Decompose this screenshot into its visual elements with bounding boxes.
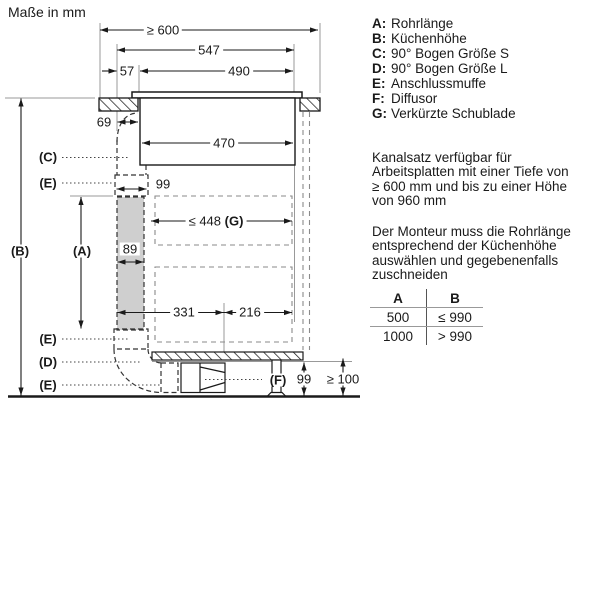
label-E-mid: (E) [36,333,59,346]
dim-drawer-width: ≤ 448 (G) [186,215,247,228]
legend-item-G: G:Verkürzte Schublade [372,106,516,121]
leader-lines [62,158,262,386]
label-B: (B) [8,245,32,258]
legend-item-F: F:Diffusor [372,91,516,106]
legend-label-A: Rohrlänge [391,16,453,31]
page: Maße in mm ≥ 600 547 57 490 69 470 99 ≤ … [0,0,600,600]
legend-key-F: F: [372,91,391,106]
dim-plinth-duct-height: 99 [294,373,314,386]
table-header-A: A [370,289,427,308]
legend-item-B: B:Küchenhöhe [372,31,516,46]
dim-drawer-width-value: ≤ 448 [189,214,221,229]
dim-plinth-min-height: ≥ 100 [324,373,362,386]
muffe-top [115,175,148,196]
legend-label-D: 90° Bogen Größe L [391,61,507,76]
legend-label-B: Küchenhöhe [391,31,467,46]
label-F: (F) [267,374,290,387]
dim-dist-left: 331 [170,306,198,319]
table-row: 1000 > 990 [370,327,483,346]
dim-muffe-width: 99 [156,178,170,191]
worktop-right [300,98,320,111]
arrowheads [18,27,345,395]
note-line: ≥ 600 mm und bis zu einer Höhe [372,180,569,194]
label-D: (D) [36,356,60,369]
legend-key-C: C: [372,46,391,61]
pipe-A [117,197,144,330]
label-E-top: (E) [36,177,59,190]
legend-key-G: G: [372,106,391,121]
label-A: (A) [70,245,94,258]
table-cell: 500 [370,308,427,327]
cabinet-bottom-shelf [152,352,303,360]
label-C: (C) [36,151,60,164]
hob-plate [132,92,302,98]
page-title: Maße in mm [8,4,86,20]
legend: A:Rohrlänge B:Küchenhöhe C:90° Bogen Grö… [372,16,516,121]
note-line: Arbeitsplatten mit einer Tiefe von [372,165,569,179]
dim-hob-width: 547 [195,44,223,57]
note-line: Der Monteur muss die Rohrlänge [372,225,571,239]
legend-key-D: D: [372,61,391,76]
dim-drawer-width-key: (G) [225,214,244,229]
table-header-B: B [427,289,484,308]
structure [8,92,360,397]
legend-key-A: A: [372,16,391,31]
legend-item-C: C:90° Bogen Größe S [372,46,516,61]
extractor-box [140,98,295,165]
table-header-row: A B [370,289,483,308]
table-cell: > 990 [427,327,484,346]
legend-item-E: E:Anschlussmuffe [372,76,516,91]
legend-label-E: Anschlussmuffe [391,76,486,91]
legend-label-G: Verkürzte Schublade [391,106,516,121]
dim-plenum-width: 470 [210,137,238,150]
muffe-bottom [161,363,178,393]
note-line: von 960 mm [372,194,569,208]
dim-worktop-depth: ≥ 600 [144,24,182,37]
bend-S-outer [117,113,138,142]
note-line: auswählen und gegebenenfalls [372,254,571,268]
legend-key-E: E: [372,76,391,91]
note-line: zuschneiden [372,268,571,282]
note-availability: Kanalsatz verfügbar für Arbeitsplatten m… [372,151,569,209]
label-E-bot: (E) [36,379,59,392]
legend-item-A: A:Rohrlänge [372,16,516,31]
dim-duct-offset: 69 [97,116,111,129]
dim-offset-left: 57 [120,65,134,78]
diffusor [181,363,225,393]
note-installer: Der Monteur muss die Rohrlänge entsprech… [372,225,571,283]
dim-pipe-width: 89 [120,243,140,256]
table-cell: 1000 [370,327,427,346]
legend-label-F: Diffusor [391,91,437,106]
legend-label-C: 90° Bogen Größe S [391,46,509,61]
pipe-length-table: A B 500 ≤ 990 1000 > 990 [370,289,483,345]
note-line: entsprechend der Küchenhöhe [372,239,571,253]
dim-cutout-width: 490 [225,65,253,78]
table-cell: ≤ 990 [427,308,484,327]
legend-item-D: D:90° Bogen Größe L [372,61,516,76]
worktop-left [99,98,138,111]
note-line: Kanalsatz verfügbar für [372,151,569,165]
legend-key-B: B: [372,31,391,46]
dim-dist-right: 216 [236,306,264,319]
table-row: 500 ≤ 990 [370,308,483,327]
